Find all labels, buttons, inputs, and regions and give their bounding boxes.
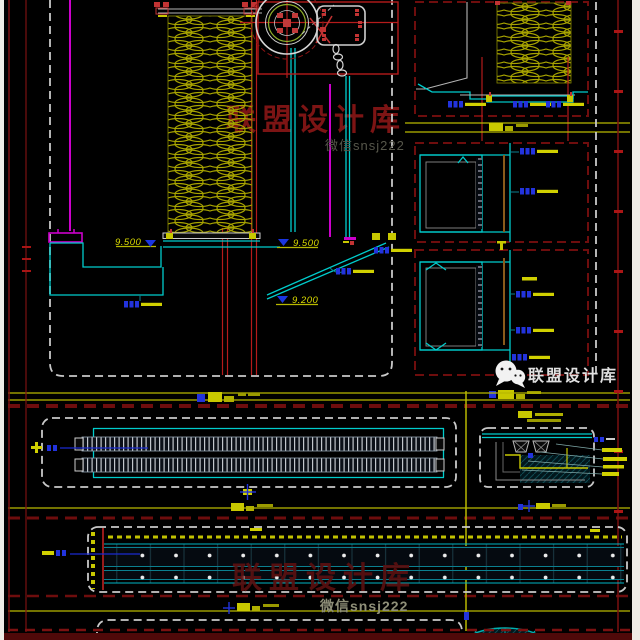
dimension-tick-row xyxy=(104,533,622,539)
hatched-fill xyxy=(520,455,590,483)
watermark-wechat-top: 微信snsj222 xyxy=(325,138,405,153)
watermark-brand-wechat: 联盟设计库 xyxy=(528,366,618,385)
coil-drapery-small xyxy=(497,3,571,83)
detail-title-mark xyxy=(489,123,503,131)
dimension-tag xyxy=(522,277,537,281)
coil-drapery-column xyxy=(168,16,252,235)
watermark-wechat-bottom: 微信snsj222 xyxy=(319,598,408,614)
elevation-marker-right: 9.500 xyxy=(277,238,319,249)
hanger-bracket xyxy=(513,441,529,452)
louver-strip xyxy=(82,458,437,472)
left-paper-edge xyxy=(0,0,4,640)
watermark-brand-bottom: 联盟设计库 xyxy=(232,562,417,595)
hanger-bracket xyxy=(533,441,549,452)
elevation-marker-low: 9.200 xyxy=(276,295,318,306)
hanger-tag xyxy=(388,233,396,240)
louver-strip xyxy=(82,437,437,451)
watermark-brand-top: 联盟设计库 xyxy=(226,104,406,137)
bottom-red-band xyxy=(4,633,632,640)
right-paper-edge xyxy=(632,0,640,640)
cad-drawing-sheet: 联盟设计库 xyxy=(0,0,640,640)
hanger-tag xyxy=(372,233,380,240)
cad-linework: 联盟设计库 xyxy=(0,0,640,640)
